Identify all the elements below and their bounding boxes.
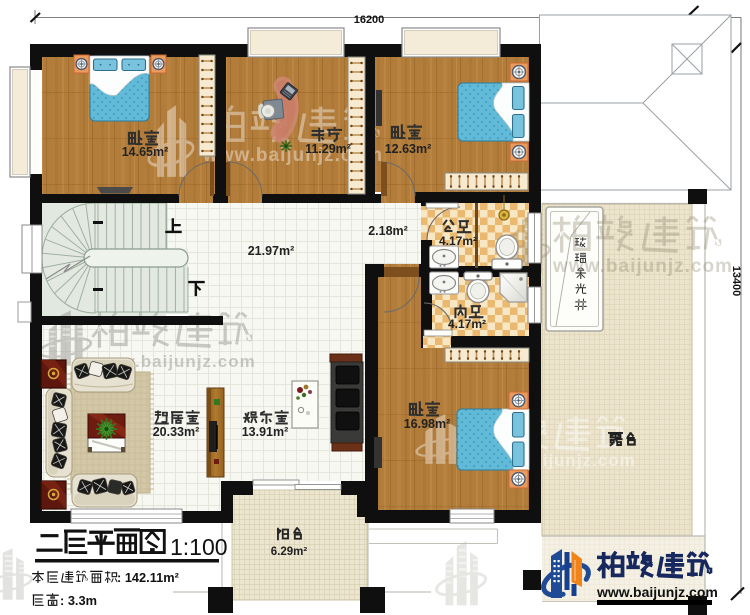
svg-text:www.baijunjz.com: www.baijunjz.com xyxy=(552,256,733,277)
svg-text:21.97m²: 21.97m² xyxy=(248,244,295,258)
svg-text:12.63m²: 12.63m² xyxy=(385,142,432,156)
svg-text:6.29m²: 6.29m² xyxy=(271,546,308,558)
svg-text:16.98m²: 16.98m² xyxy=(404,417,451,431)
svg-text:13.91m²: 13.91m² xyxy=(242,425,289,439)
svg-text:20.33m²: 20.33m² xyxy=(153,425,200,439)
svg-text:4.17m²: 4.17m² xyxy=(439,234,477,248)
svg-text:www.baijunjz.com: www.baijunjz.com xyxy=(596,584,718,600)
svg-text:2.18m²: 2.18m² xyxy=(368,224,408,238)
svg-text:: 3.3m: : 3.3m xyxy=(60,593,97,608)
svg-text:16200: 16200 xyxy=(354,14,385,26)
svg-text:11.29m²: 11.29m² xyxy=(305,142,351,156)
svg-text:: 142.11m²: : 142.11m² xyxy=(117,570,179,585)
svg-text:14.65m²: 14.65m² xyxy=(122,145,169,159)
svg-text:1:100: 1:100 xyxy=(170,534,228,560)
svg-text:4.17m²: 4.17m² xyxy=(448,317,486,331)
